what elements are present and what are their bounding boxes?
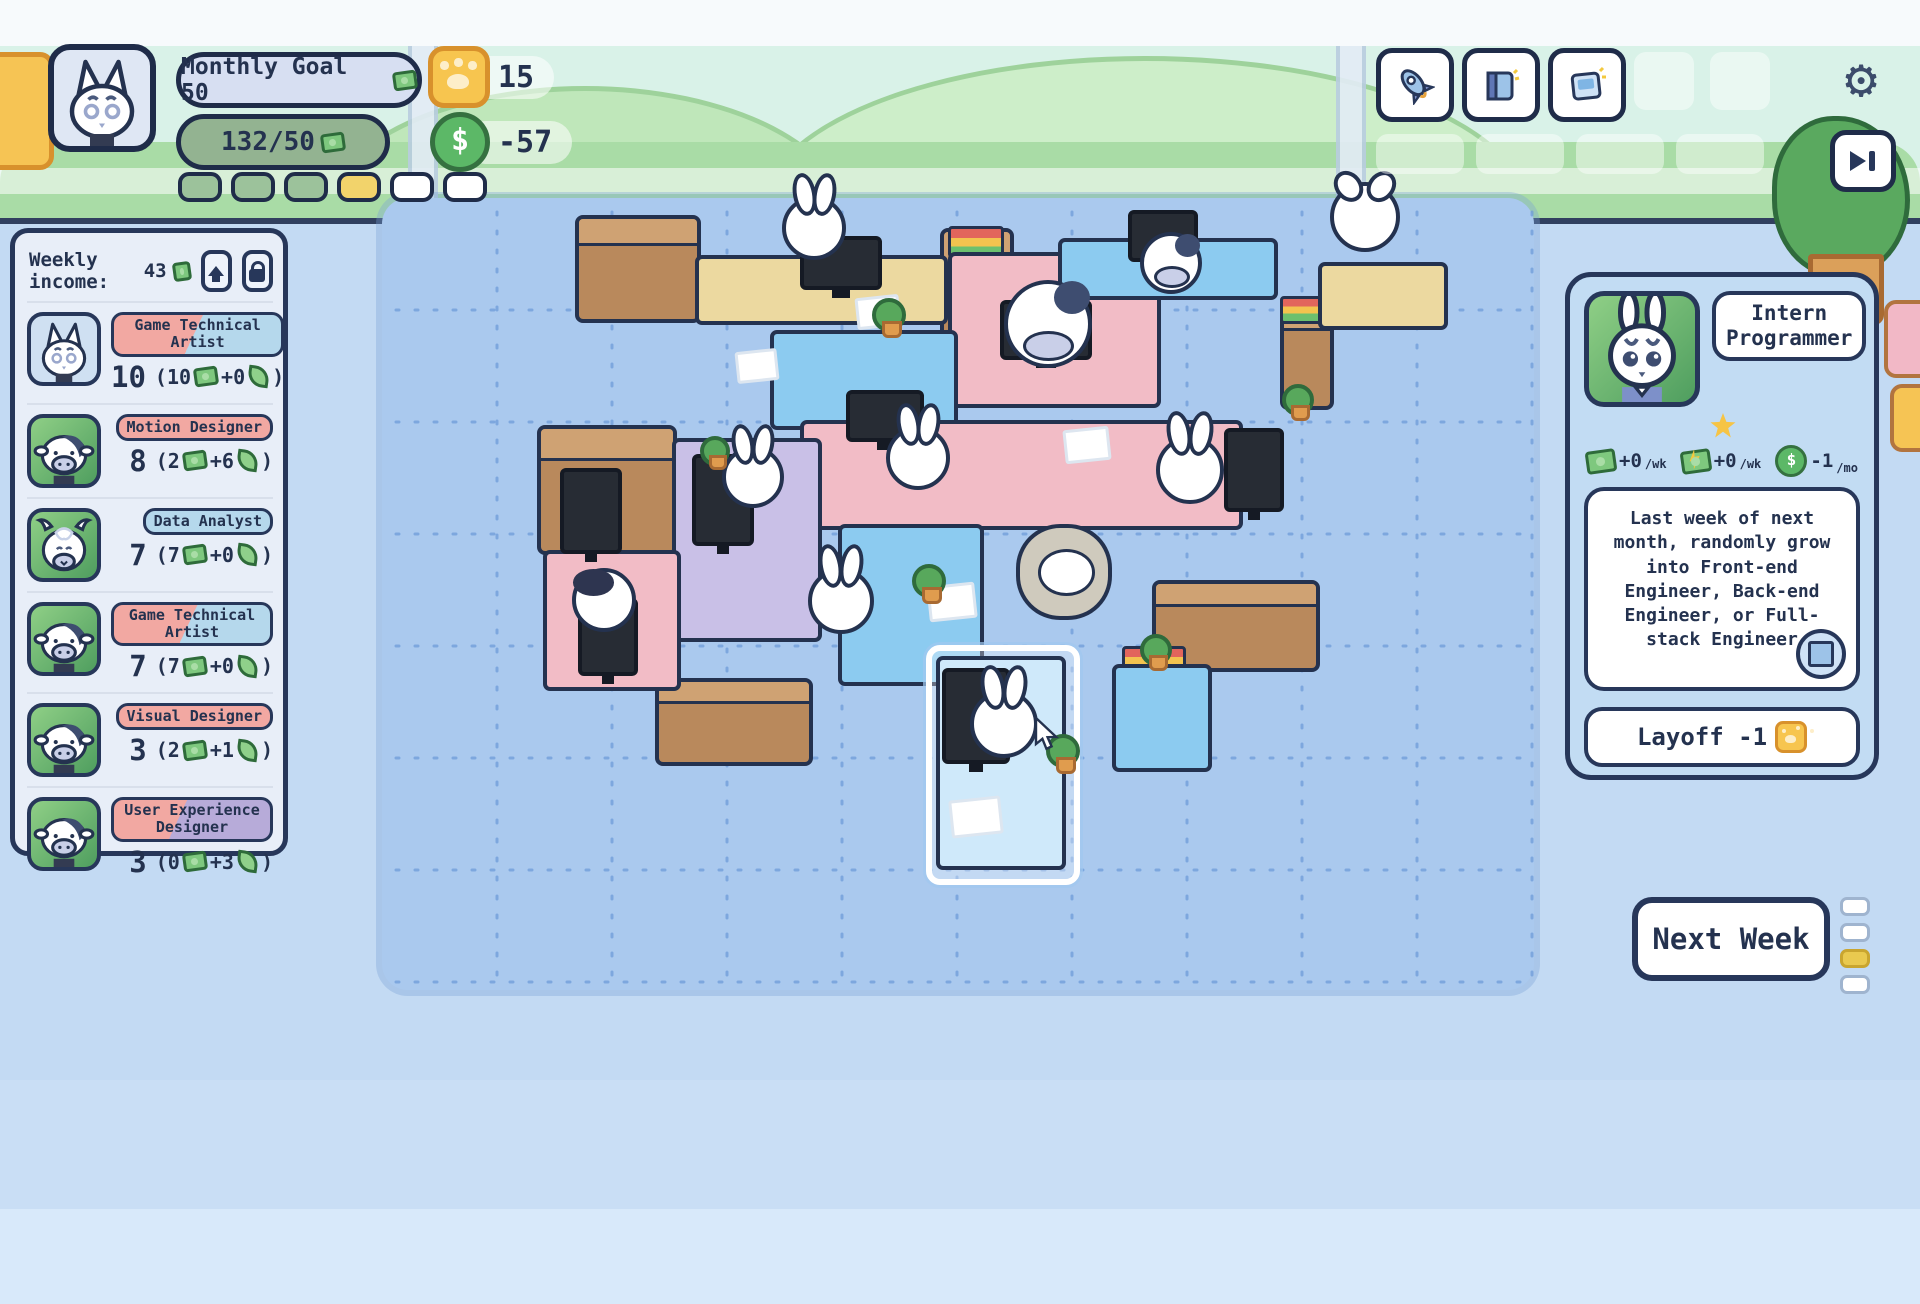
employee-stat: $-1/mo: [1775, 445, 1858, 477]
book-icon: [1481, 65, 1521, 105]
player-avatar[interactable]: [48, 44, 156, 152]
leaf-icon: [247, 365, 271, 389]
bill-icon: [1585, 448, 1618, 475]
employee-role-badge: User Experience Designer: [111, 797, 273, 842]
employee-detail-panel: Intern Programmer +0/wk+0/wk$-1/mo Last …: [1565, 272, 1879, 780]
leaf-icon: [236, 738, 260, 762]
employee-avatar-cow: [27, 602, 101, 676]
goal-pip-empty: [390, 172, 434, 202]
money-icon: [193, 365, 219, 387]
layoff-button[interactable]: Layoff -1: [1584, 707, 1860, 767]
mouse-cursor: [1034, 718, 1064, 752]
star-icon: [1710, 413, 1736, 439]
rocket-icon: [1395, 65, 1435, 105]
money-icon: [182, 850, 208, 872]
week-pip-active: [1840, 949, 1870, 968]
empty-item-slot: [1634, 52, 1694, 110]
employee-role-badge: Data Analyst: [143, 508, 273, 535]
window-mullion: [1336, 46, 1366, 218]
week-progress-pips: [1840, 897, 1870, 994]
employee-row[interactable]: Game Technical Artist 7(7+0): [27, 591, 273, 693]
money-icon: [171, 260, 192, 281]
settings-button[interactable]: ⚙: [1830, 48, 1892, 110]
employee-info: Game Technical Artist 10(10+0): [111, 312, 284, 394]
monthly-goal-label: Monthly Goal 50: [181, 54, 387, 106]
paw-balance: 15: [428, 46, 554, 108]
week-pip-empty: [1840, 975, 1870, 994]
employee-role-badge: Motion Designer: [116, 414, 273, 441]
book-button[interactable]: [1462, 48, 1540, 122]
week-pip-empty: [1840, 897, 1870, 916]
money-icon: [182, 655, 208, 677]
empty-queue-slot: [1376, 134, 1464, 174]
empty-queue-slot: [1676, 134, 1764, 174]
employee-info: Data Analyst 7(7+0): [111, 508, 273, 572]
empty-item-slot: [1710, 52, 1770, 110]
wall-top: [0, 0, 1920, 46]
goal-pip-active: [337, 172, 381, 202]
goal-pip-filled: [178, 172, 222, 202]
weekly-income-value: 43: [144, 260, 167, 282]
skip-icon: [1848, 149, 1878, 173]
paw-coin-icon: [1775, 721, 1807, 753]
upgrade-button[interactable]: [201, 250, 232, 292]
empty-queue-slot: [1576, 134, 1664, 174]
fruit-bowl-decor: [0, 52, 54, 170]
goal-pip-filled: [284, 172, 328, 202]
star-rating: [1710, 413, 1860, 443]
money-icon: [182, 450, 208, 472]
lock-icon: [249, 269, 265, 282]
chip-icon: [1796, 629, 1846, 679]
employee-role-badge: Game Technical Artist: [111, 602, 273, 647]
employee-income: 7(7+0): [129, 538, 273, 572]
coin-icon: $: [1775, 445, 1807, 477]
money-icon: [182, 739, 208, 761]
goal-progress-pill: 132/50: [176, 114, 390, 170]
employee-row[interactable]: Game Technical Artist 10(10+0): [27, 301, 273, 403]
selected-employee-role: Intern Programmer: [1712, 291, 1866, 361]
employee-info: Game Technical Artist 7(7+0): [111, 602, 273, 684]
weekly-income-label: Weekly income:: [29, 249, 138, 293]
employee-row[interactable]: User Experience Designer 3(0+3): [27, 786, 273, 888]
goal-pip-empty: [443, 172, 487, 202]
panel-header: Intern Programmer: [1584, 291, 1860, 407]
employee-description: Last week of next month, randomly grow i…: [1614, 508, 1831, 650]
employee-role-badge: Visual Designer: [116, 703, 273, 730]
employee-info: Visual Designer 3(2+1): [111, 703, 273, 767]
week-pip-empty: [1840, 923, 1870, 942]
leaf-icon: [236, 850, 260, 874]
goal-progress-label: 132/50: [221, 127, 315, 157]
paw-coin-icon: [428, 46, 490, 108]
employee-stat: +0/wk: [1681, 450, 1762, 473]
employee-row[interactable]: Data Analyst 7(7+0): [27, 497, 273, 591]
floor-edge: [0, 1209, 1920, 1304]
card-icon: [1567, 65, 1607, 105]
weekly-income-row: Weekly income: 43: [27, 243, 273, 301]
employee-income: 10(10+0): [111, 360, 284, 394]
team-sidebar: Weekly income: 43 Game Technical Artist …: [10, 228, 288, 856]
employee-role-badge: Game Technical Artist: [111, 312, 284, 357]
employee-list: Game Technical Artist 10(10+0) Motion De…: [27, 301, 273, 888]
layoff-label: Layoff -1: [1637, 723, 1767, 751]
bill-bolt-icon: [1679, 448, 1712, 475]
chip-die: [1808, 641, 1834, 667]
leaf-icon: [236, 543, 260, 567]
employee-avatar-cat: [27, 312, 101, 386]
leaf-icon: [236, 654, 260, 678]
empty-queue-slot: [1476, 134, 1564, 174]
employee-avatar-cow: [27, 797, 101, 871]
leaf-icon: [236, 449, 260, 473]
side-furniture: [1884, 300, 1920, 378]
skip-week-button[interactable]: [1830, 130, 1896, 192]
rocket-button[interactable]: [1376, 48, 1454, 122]
monthly-goal-pill: Monthly Goal 50: [176, 52, 422, 108]
employee-income: 7(7+0): [129, 649, 273, 683]
employee-info: User Experience Designer 3(0+3): [111, 797, 273, 879]
employee-row[interactable]: Motion Designer 8(2+6): [27, 403, 273, 497]
goal-week-pips: [178, 172, 487, 202]
employee-income: 8(2+6): [129, 444, 273, 478]
goal-pip-filled: [231, 172, 275, 202]
cash-flow: $ -57: [430, 112, 572, 172]
up-arrow-icon: [208, 266, 224, 276]
money-icon: [182, 544, 208, 566]
employee-stat: +0/wk: [1586, 450, 1667, 473]
employee-avatar-goat: [27, 508, 101, 582]
money-icon: [392, 69, 418, 91]
selected-employee-avatar: [1584, 291, 1700, 407]
employee-info: Motion Designer 8(2+6): [111, 414, 273, 478]
lock-button[interactable]: [242, 250, 273, 292]
side-furniture: [1890, 384, 1920, 452]
employee-row[interactable]: Visual Designer 3(2+1): [27, 692, 273, 786]
next-week-label: Next Week: [1652, 922, 1809, 956]
employee-description-card: Last week of next month, randomly grow i…: [1584, 487, 1860, 691]
employee-stats-row: +0/wk+0/wk$-1/mo: [1586, 445, 1858, 477]
employee-avatar-cow: [27, 703, 101, 777]
employee-income: 3(0+3): [129, 845, 273, 879]
dollar-coin-icon: $: [430, 112, 490, 172]
money-icon: [320, 131, 346, 153]
employee-avatar-cow: [27, 414, 101, 488]
next-week-button[interactable]: Next Week: [1632, 897, 1830, 981]
employee-income: 3(2+1): [129, 733, 273, 767]
card-button[interactable]: [1548, 48, 1626, 122]
